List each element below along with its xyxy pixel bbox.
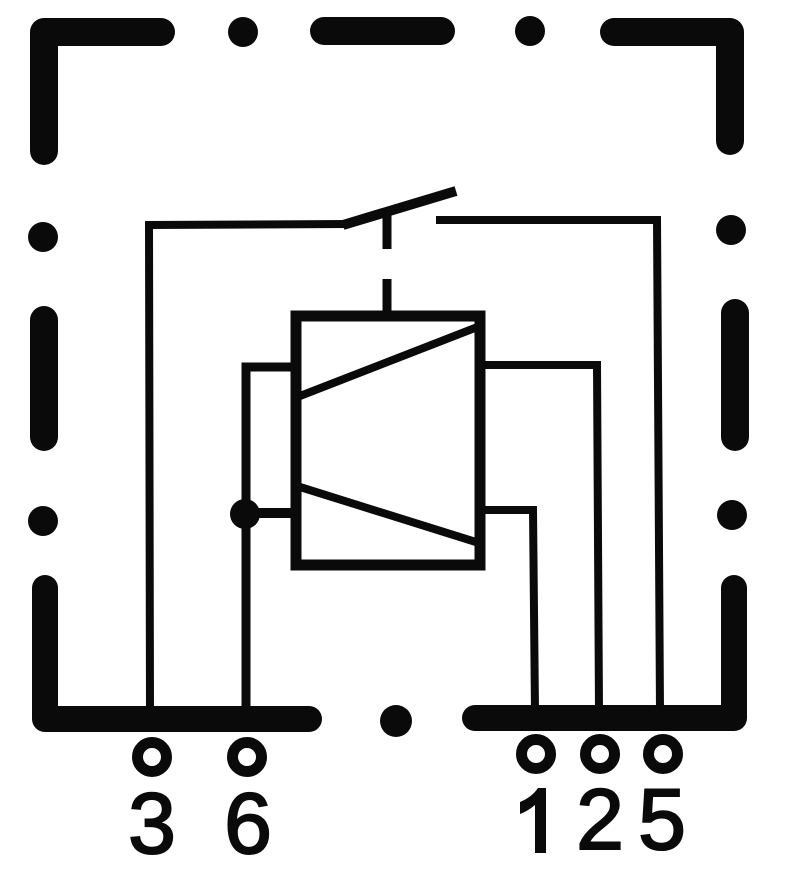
svg-text:2: 2	[576, 772, 624, 868]
svg-text:3: 3	[128, 776, 176, 872]
svg-text:6: 6	[224, 776, 272, 872]
svg-text:5: 5	[638, 772, 686, 868]
